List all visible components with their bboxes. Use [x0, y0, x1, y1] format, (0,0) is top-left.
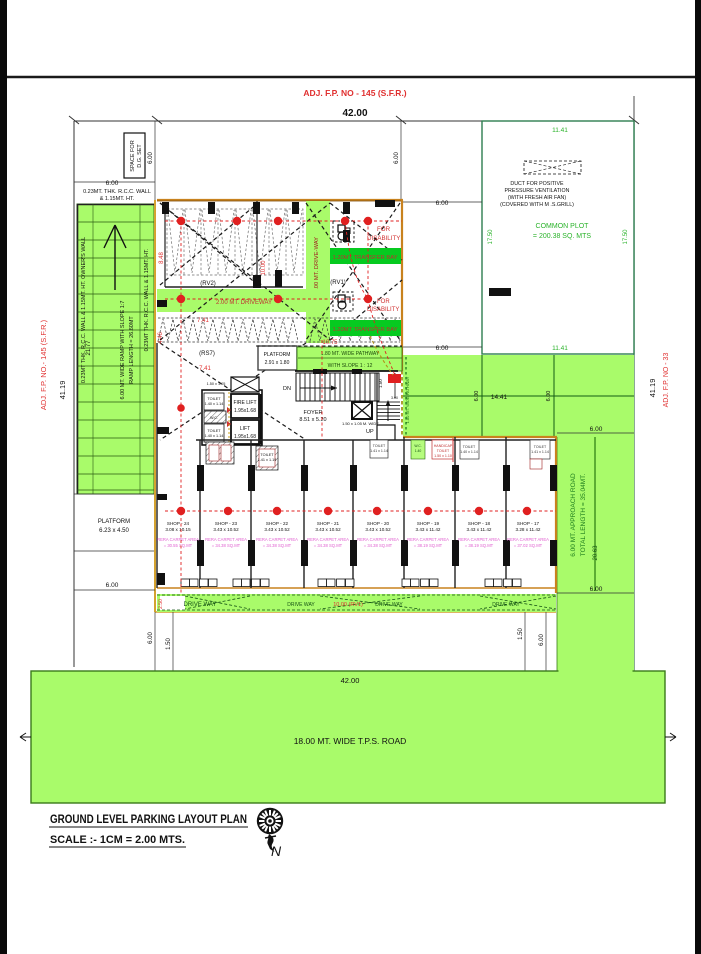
svg-text:11.41: 11.41 — [552, 345, 568, 352]
svg-text:FOR: FOR — [377, 226, 391, 233]
svg-text:WITH SLOPE 1 : 12: WITH SLOPE 1 : 12 — [328, 363, 373, 369]
svg-text:ADJ. F.P. NO.- 145 (S.F.R.): ADJ. F.P. NO.- 145 (S.F.R.) — [39, 319, 48, 410]
svg-text:10.00: 10.00 — [261, 260, 267, 276]
svg-text:20.63: 20.63 — [593, 545, 599, 561]
svg-text:SHOP - 19: SHOP - 19 — [417, 521, 440, 526]
svg-text:6.00: 6.00 — [394, 152, 400, 164]
svg-text:1.50: 1.50 — [518, 628, 524, 640]
svg-text:TOILET: TOILET — [373, 444, 386, 448]
svg-text:17.50: 17.50 — [488, 229, 494, 245]
svg-text:= 37.02 SQ.MT: = 37.02 SQ.MT — [514, 543, 543, 548]
svg-text:= 34.38 SQ.MT: = 34.38 SQ.MT — [364, 543, 393, 548]
svg-text:3.43 x 11.42: 3.43 x 11.42 — [416, 527, 441, 532]
svg-text:GROUND LEVEL PARKING LAYOUT PL: GROUND LEVEL PARKING LAYOUT PLAN — [50, 814, 247, 826]
svg-text:(WITH FRESH AIR FAN): (WITH FRESH AIR FAN) — [508, 195, 567, 201]
svg-text:DN: DN — [283, 386, 291, 392]
svg-text:6.00: 6.00 — [148, 632, 154, 644]
svg-text:UP: UP — [366, 429, 374, 435]
svg-text:6.00 MT. APPROACH ROAD: 6.00 MT. APPROACH ROAD — [570, 473, 577, 557]
svg-text:SCALE :- 1CM = 2.00 MTS.: SCALE :- 1CM = 2.00 MTS. — [50, 834, 185, 846]
svg-text:SHOP - 21: SHOP - 21 — [317, 521, 340, 526]
svg-text:= 34.38 SQ.MT: = 34.38 SQ.MT — [314, 543, 343, 548]
svg-text:(RV1): (RV1) — [330, 280, 346, 286]
svg-text:1.95x1.68: 1.95x1.68 — [234, 434, 256, 440]
svg-text:RERA CARPET AREA: RERA CARPET AREA — [458, 537, 500, 542]
svg-text:3.43 x 11.42: 3.43 x 11.42 — [467, 527, 492, 532]
svg-text:6.00: 6.00 — [474, 391, 480, 402]
svg-text:FIRE LIFT: FIRE LIFT — [233, 400, 256, 406]
svg-text:41.19: 41.19 — [58, 381, 67, 400]
svg-text:= 34.38 SQ.MT: = 34.38 SQ.MT — [263, 543, 292, 548]
svg-text:2.00 MT. DRIVE-WAY: 2.00 MT. DRIVE-WAY — [314, 237, 320, 293]
svg-text:2.91 x 1.80: 2.91 x 1.80 — [265, 360, 290, 366]
svg-text:DRIVE WAY: DRIVE WAY — [287, 602, 315, 608]
svg-text:HANDICAP: HANDICAP — [434, 444, 453, 448]
svg-text:TOILET: TOILET — [207, 397, 221, 401]
svg-text:TOILET: TOILET — [437, 449, 450, 453]
svg-text:RERA CARPET AREA: RERA CARPET AREA — [307, 537, 349, 542]
svg-text:1.50 x 1.10: 1.50 x 1.10 — [434, 454, 452, 458]
svg-text:D.G. SET: D.G. SET — [137, 144, 143, 168]
svg-text:(RV2): (RV2) — [200, 281, 216, 287]
svg-text:17.50: 17.50 — [623, 229, 629, 245]
svg-text:41.19: 41.19 — [648, 379, 657, 398]
svg-text:8.48: 8.48 — [159, 252, 165, 264]
svg-text:RERA CARPET AREA: RERA CARPET AREA — [507, 537, 549, 542]
svg-text:3.28 x 11.42: 3.28 x 11.42 — [516, 527, 541, 532]
svg-text:ADJ. F.P. NO - 33: ADJ. F.P. NO - 33 — [663, 353, 670, 408]
svg-text:RERA CARPET AREA: RERA CARPET AREA — [357, 537, 399, 542]
svg-text:RERA CARPET AREA: RERA CARPET AREA — [157, 537, 199, 542]
svg-text:6.23 x 4.50: 6.23 x 4.50 — [99, 528, 129, 534]
svg-text:1.50: 1.50 — [166, 638, 172, 650]
svg-text:1.40 x 1.14: 1.40 x 1.14 — [460, 450, 478, 454]
svg-text:1.50 x 1.05 M. WIDE: 1.50 x 1.05 M. WIDE — [342, 421, 379, 426]
svg-text:1.20MT TRANSFER BAY: 1.20MT TRANSFER BAY — [332, 327, 397, 333]
svg-text:= 38.19 SQ.MT: = 38.19 SQ.MT — [465, 543, 494, 548]
svg-text:DRIVE WAY: DRIVE WAY — [375, 602, 403, 608]
svg-text:= 34.38 SQ.MT: = 34.38 SQ.MT — [212, 543, 241, 548]
svg-text:PLATFORM: PLATFORM — [264, 352, 291, 358]
svg-text:6.00: 6.00 — [590, 586, 603, 593]
svg-text:SHOP - 23: SHOP - 23 — [215, 521, 238, 526]
svg-text:SHOP - 22: SHOP - 22 — [266, 521, 289, 526]
svg-text:21.77: 21.77 — [86, 340, 92, 356]
svg-text:1.20MT TRANSFER BAY: 1.20MT TRANSFER BAY — [332, 255, 397, 261]
svg-text:1.41 x 1.14: 1.41 x 1.14 — [370, 449, 388, 453]
svg-text:42.00: 42.00 — [341, 676, 360, 685]
svg-text:(COVERED WITH M .S.GRILL): (COVERED WITH M .S.GRILL) — [500, 202, 574, 208]
svg-text:6.00 MT. WIDE RAMP WITH SLOPE: 6.00 MT. WIDE RAMP WITH SLOPE 1:7 — [120, 301, 126, 400]
svg-text:N: N — [271, 843, 282, 859]
svg-text:2.00 MT. DRIVEWAY: 2.00 MT. DRIVEWAY — [216, 300, 272, 306]
svg-text:7.41: 7.41 — [197, 318, 209, 324]
svg-text:PRESSURE VENTILATION: PRESSURE VENTILATION — [505, 188, 570, 194]
svg-text:2.50: 2.50 — [158, 599, 164, 609]
svg-text:FOR: FOR — [377, 299, 390, 305]
svg-text:ADJ. F.P. NO - 145 (S.F.R.): ADJ. F.P. NO - 145 (S.F.R.) — [303, 88, 406, 98]
svg-text:7.41: 7.41 — [199, 366, 211, 372]
svg-text:DRIVE WAY: DRIVE WAY — [183, 602, 216, 608]
svg-text:8.51 x 5.20: 8.51 x 5.20 — [299, 417, 326, 423]
svg-text:10.00 (RV1): 10.00 (RV1) — [333, 602, 363, 608]
svg-text:1.95x1.68: 1.95x1.68 — [234, 408, 256, 414]
svg-text:3.43 x 10.52: 3.43 x 10.52 — [315, 527, 341, 532]
svg-text:1.50 x 1.05: 1.50 x 1.05 — [207, 382, 226, 386]
svg-text:TOILET: TOILET — [534, 445, 547, 449]
svg-text:(RS7): (RS7) — [199, 351, 215, 357]
svg-text:& 1.15MT. HT.: & 1.15MT. HT. — [100, 196, 135, 202]
svg-text:3.08 x 10.15: 3.08 x 10.15 — [165, 527, 191, 532]
svg-text:6.00: 6.00 — [148, 152, 154, 164]
svg-text:SHOP - 18: SHOP - 18 — [468, 521, 491, 526]
svg-text:SHOP - 24: SHOP - 24 — [167, 521, 190, 526]
svg-text:W.C.: W.C. — [414, 444, 421, 448]
svg-text:42.00: 42.00 — [342, 108, 367, 119]
svg-text:1.41 x 1.19: 1.41 x 1.19 — [258, 458, 277, 462]
svg-text:6.00: 6.00 — [590, 426, 603, 433]
svg-text:SHOP - 20: SHOP - 20 — [367, 521, 390, 526]
svg-text:TOILET: TOILET — [463, 445, 476, 449]
svg-text:1.40: 1.40 — [415, 449, 422, 453]
svg-text:6.00: 6.00 — [546, 391, 552, 402]
svg-text:6.00: 6.00 — [539, 634, 545, 646]
svg-text:DUCT FOR POSITIVE: DUCT FOR POSITIVE — [510, 181, 564, 187]
svg-text:6.00: 6.00 — [106, 180, 119, 187]
svg-text:= 30.55 SQ.MT: = 30.55 SQ.MT — [164, 543, 193, 548]
svg-text:0.23MT. THK. R.C.C. WALL: 0.23MT. THK. R.C.C. WALL — [83, 189, 151, 195]
svg-text:SHOP - 17: SHOP - 17 — [517, 521, 540, 526]
svg-text:RERA CARPET AREA: RERA CARPET AREA — [407, 537, 449, 542]
svg-text:14.41: 14.41 — [491, 394, 508, 401]
svg-text:1.80 MT. WIDE PATHWAY: 1.80 MT. WIDE PATHWAY — [321, 351, 380, 357]
svg-text:DRIVE WAY: DRIVE WAY — [492, 602, 520, 608]
svg-text:LIFT: LIFT — [240, 426, 250, 432]
svg-text:RERA CARPET AREA: RERA CARPET AREA — [205, 537, 247, 542]
svg-text:1.50: 1.50 — [378, 379, 383, 388]
svg-text:RERA CARPET AREA: RERA CARPET AREA — [256, 537, 298, 542]
svg-text:0.23MT THK. R.C.C. WALL & 1.15: 0.23MT THK. R.C.C. WALL & 1.15MT. HT. — [144, 248, 150, 351]
svg-text:W.C.: W.C. — [210, 416, 218, 420]
svg-text:DISABILITY: DISABILITY — [367, 235, 400, 242]
svg-text:3.43 x 10.52: 3.43 x 10.52 — [213, 527, 239, 532]
svg-text:PLATFORM: PLATFORM — [98, 519, 130, 525]
svg-text:11.41: 11.41 — [552, 127, 568, 134]
svg-text:6.00: 6.00 — [436, 200, 449, 207]
svg-text:3.43 x 10.52: 3.43 x 10.52 — [365, 527, 391, 532]
svg-text:RAMP LENGTH = 26.60MT: RAMP LENGTH = 26.60MT — [129, 316, 135, 384]
svg-text:TOILET: TOILET — [260, 453, 274, 457]
svg-text:= 200.38 SQ. MTS: = 200.38 SQ. MTS — [533, 233, 591, 240]
svg-text:1.40 x 1.14: 1.40 x 1.14 — [205, 434, 224, 438]
svg-text:3.43 x 10.52: 3.43 x 10.52 — [264, 527, 290, 532]
svg-text:6.00: 6.00 — [436, 345, 449, 352]
svg-text:DISABILITY: DISABILITY — [367, 307, 399, 313]
svg-text:0.23MT THK. R.C.C. WALL & 1.15: 0.23MT THK. R.C.C. WALL & 1.15MT. HT. OW… — [81, 237, 87, 383]
svg-text:1.41 x 1.14: 1.41 x 1.14 — [531, 450, 549, 454]
svg-text:6.00: 6.00 — [106, 582, 119, 589]
svg-text:TOILET: TOILET — [207, 429, 221, 433]
svg-text:FOYER: FOYER — [304, 410, 323, 416]
svg-text:COMMON PLOT: COMMON PLOT — [536, 223, 590, 230]
svg-text:SPACE FOR: SPACE FOR — [130, 140, 136, 171]
svg-text:TOTAL LENGTH = 35.04MT.: TOTAL LENGTH = 35.04MT. — [580, 474, 587, 557]
svg-text:1.40 x 1.14: 1.40 x 1.14 — [205, 402, 224, 406]
svg-text:3.00: 3.00 — [391, 396, 398, 400]
svg-text:18.00 MT. WIDE T.P.S. ROAD: 18.00 MT. WIDE T.P.S. ROAD — [294, 736, 407, 746]
svg-text:= 38.19 SQ.MT: = 38.19 SQ.MT — [414, 543, 443, 548]
